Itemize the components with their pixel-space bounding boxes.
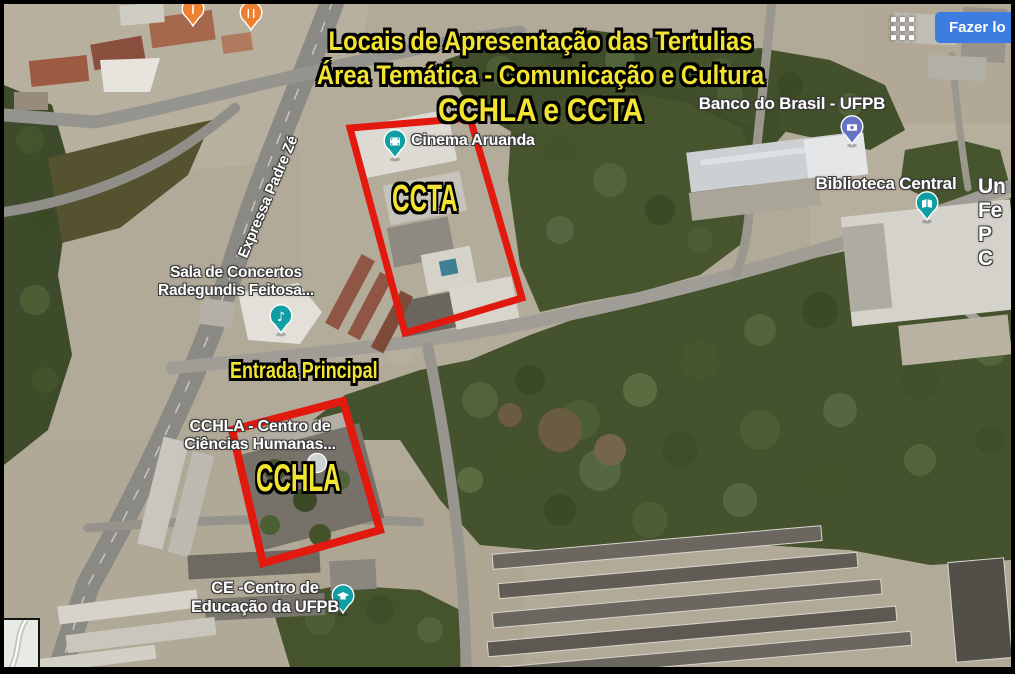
ce-poi-line-2: Educação da UFPB	[191, 598, 339, 617]
university-line-4: C	[978, 247, 1006, 271]
entrada-principal-label: Entrada Principal	[230, 359, 378, 382]
satellite-map-viewport[interactable]: ♪	[4, 4, 1011, 667]
title-overlay: Locais de Apresentação das Tertulias Áre…	[70, 24, 1011, 129]
sala-line-2: Radegundis Feitosa...	[158, 282, 314, 300]
music-note-icon: ♪	[277, 310, 285, 325]
university-line-3: P	[978, 223, 1006, 247]
cchla-poi-line-2: Ciências Humanas...	[184, 436, 336, 454]
cchla-box-label: CCHLA	[256, 459, 341, 498]
university-line-1: Un	[978, 175, 1006, 199]
ce-poi-line-1: CE -Centro de	[191, 579, 339, 598]
pole-icon	[192, 5, 194, 14]
login-button[interactable]: Fazer lo	[935, 12, 1011, 43]
ce-poi-label: CE -Centro de Educação da UFPB	[191, 579, 339, 617]
cchla-poi-line-1: CCHLA - Centro de	[184, 418, 336, 436]
title-line-1: Locais de Apresentação das Tertulias	[126, 24, 954, 58]
pool	[439, 258, 459, 276]
title-line-2: Área Temática - Comunicação e Cultura	[126, 58, 954, 92]
cchla-poi-label: CCHLA - Centro de Ciências Humanas...	[184, 418, 336, 454]
ccta-box-label: CCTA	[392, 180, 458, 218]
google-apps-grid-icon[interactable]	[891, 17, 914, 40]
film-icon	[390, 138, 400, 146]
screenshot-root: { "title_overlay": { "line1": "Locais de…	[0, 0, 1015, 674]
university-line-2: Fe	[978, 199, 1006, 223]
biblioteca-label: Biblioteca Central	[816, 175, 957, 192]
title-line-3: CCHLA e CCTA	[126, 92, 954, 129]
cinema-label: Cinema Aruanda	[411, 133, 535, 149]
minimap-inset[interactable]	[4, 618, 40, 667]
sala-line-1: Sala de Concertos	[158, 264, 314, 282]
minimap-road-preview	[4, 620, 38, 667]
sala-concertos-label: Sala de Concertos Radegundis Feitosa...	[158, 264, 314, 300]
university-label-truncated: Un Fe P C	[978, 175, 1006, 271]
